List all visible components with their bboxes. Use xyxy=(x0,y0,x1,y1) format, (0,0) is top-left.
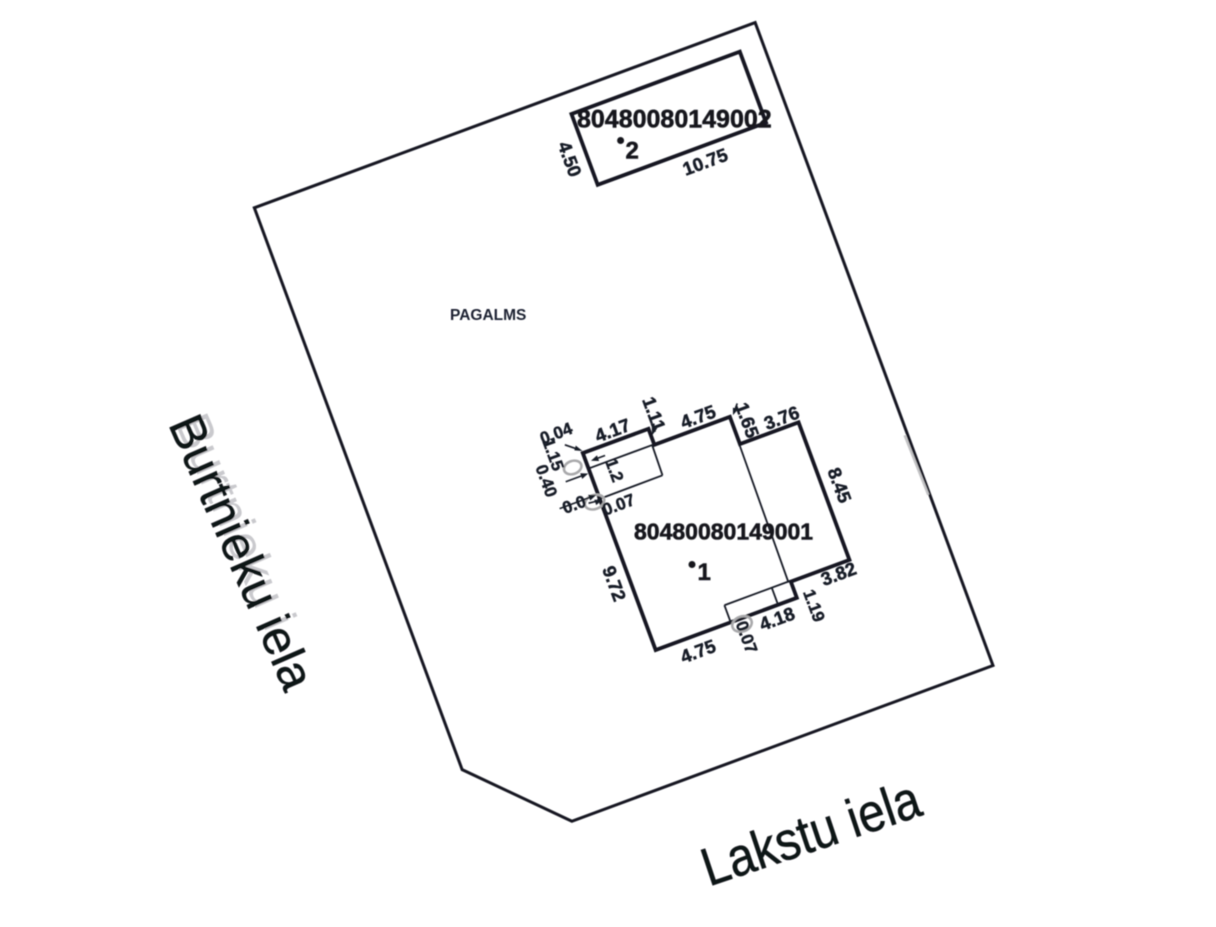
svg-text:80480080149002: 80480080149002 xyxy=(577,106,772,134)
svg-text:PAGALMS: PAGALMS xyxy=(450,307,526,324)
svg-text:1: 1 xyxy=(698,559,711,586)
svg-text:2: 2 xyxy=(626,138,639,165)
svg-text:80480080149001: 80480080149001 xyxy=(634,519,813,545)
